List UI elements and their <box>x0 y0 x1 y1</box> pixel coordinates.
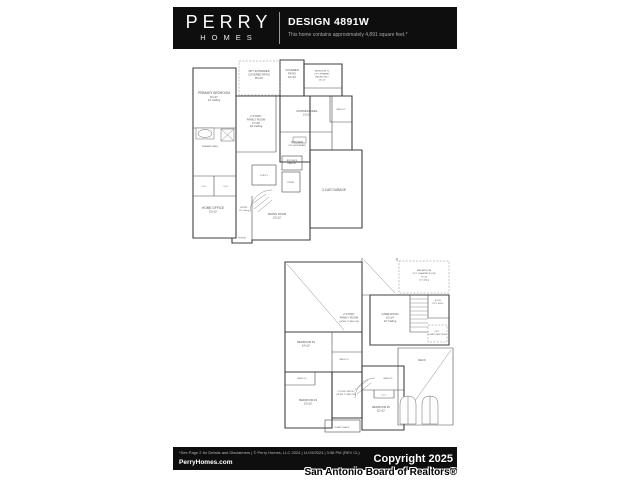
label-game-room-ceiling: 10' Ceiling <box>384 319 397 323</box>
first-floor-fixtures <box>196 128 306 143</box>
label-kitchen: KITCHEN <box>291 140 303 144</box>
label-powder: PWDR. <box>287 182 295 184</box>
label-family-room-1: 2 STORY <box>250 114 262 118</box>
footer-website-link[interactable]: PerryHomes.com <box>179 459 232 466</box>
label-primary-bedroom: PRIMARY BEDROOM <box>198 91 230 95</box>
label-computer-desk-1: OPT. <box>435 331 440 333</box>
label-bedroom2-3: BEDROOM 2 <box>315 77 329 79</box>
label-primary-bedroom-ceiling: 13' Ceiling <box>208 98 221 102</box>
label-entry-ceiling: 13' Ceiling <box>239 210 250 212</box>
label-morning-area: MORNING AREA <box>297 109 318 113</box>
label-butlers-1: BUTLER'S <box>287 160 298 162</box>
label-family-room-dims: 17'x19' <box>252 121 261 125</box>
copyright-text: Copyright 2025 <box>374 453 453 465</box>
label-opt-patio-1: OPT. EXTENDED <box>248 69 269 73</box>
second-floor-plan: 2 STORY FAMILY ROOM (OPEN TO BELOW) MEDI… <box>277 253 457 453</box>
label-storage: STOR. <box>435 300 442 302</box>
label-bath2: BATH #2 <box>337 108 346 111</box>
label-morning-area-dims: 13'x11' <box>303 112 312 116</box>
label-bedroom2-2: OPT. PRIMARY <box>314 73 330 76</box>
logo-perry: PERRY <box>183 12 275 32</box>
label-utility: UTILITY <box>260 175 269 177</box>
label-entry-open-1: 2 STORY ENTRY <box>337 391 355 393</box>
label-bedroom2-dims: 13'x12' <box>319 80 326 82</box>
label-entry: ENTRY <box>240 207 248 209</box>
label-closet1: CLO. <box>201 186 206 188</box>
label-bath4: BATH #4 <box>298 377 307 380</box>
first-floor-plan: PRIMARY BEDROOM 16'x17' 13' Ceiling OPT.… <box>185 55 367 251</box>
first-floor-labels: PRIMARY BEDROOM 16'x17' 13' Ceiling OPT.… <box>198 68 346 240</box>
label-dining-dims: 13'x12' <box>273 215 282 219</box>
label-dining: DINING ROOM <box>268 212 287 216</box>
label-family-open-3: (OPEN TO BELOW) <box>339 321 359 323</box>
label-bath3: BATH #3 <box>340 358 349 361</box>
label-game-room: GAME ROOM <box>381 312 399 316</box>
label-clo5: CLO. <box>381 395 386 397</box>
label-porch: PORCH <box>238 238 246 240</box>
board-attribution: San Antonio Board of Realtors® <box>304 467 457 478</box>
label-media-room-ceiling: 10' Ceiling <box>419 280 430 282</box>
label-family-open-1: 2 STORY <box>343 312 355 316</box>
label-game-room-dims: 15'x14' <box>386 315 395 319</box>
label-family-open-2: FAMILY ROOM <box>340 315 359 319</box>
label-media-room-2: OPT. THEATRE ROOM <box>413 272 436 275</box>
label-covered-patio-1: COVERED <box>285 68 298 72</box>
label-home-office-dims: 13'x12' <box>209 210 218 214</box>
label-closet2: CLO. <box>223 186 228 188</box>
label-family-room-2: FAMILY ROOM <box>247 117 266 121</box>
label-home-office: HOME OFFICE <box>202 206 224 210</box>
label-media-room-1: MEDIA ROOM <box>417 269 431 272</box>
label-family-room-ceiling: 19' Ceiling <box>250 124 263 128</box>
label-covered-patio-dims: 10'x10' <box>288 75 297 79</box>
label-storage-opt: OPT. ELEV. <box>432 303 444 305</box>
label-computer-desk-2: COMPUTER DESK <box>427 334 447 336</box>
header-text: DESIGN 4891W This home contains approxim… <box>288 16 408 38</box>
label-bedroom5-dims: 12'x12' <box>377 408 386 412</box>
label-bedroom2-1: BEDROOM #2 <box>315 71 330 73</box>
second-floor-walls <box>285 258 453 432</box>
label-butlers-2: PANTRY <box>288 162 297 165</box>
header-divider <box>279 12 280 44</box>
label-opt-patio-2: COVERED PATIO <box>248 72 270 76</box>
label-deck: DECK <box>418 358 426 362</box>
design-subtitle: This home contains approximately 4,891 s… <box>288 32 408 38</box>
label-media-room-dims: 17'x14' <box>421 276 428 278</box>
label-garage: 3-CAR GARAGE <box>322 188 346 192</box>
label-entry-open-2: (OPEN TO BELOW) <box>336 394 356 396</box>
label-primary-bedroom-dims: 16'x17' <box>210 95 219 99</box>
header-bar: PERRY HOMES DESIGN 4891W This home conta… <box>173 7 457 49</box>
label-bedroom3-dims: 14'x12' <box>302 343 311 347</box>
label-opt-patio-dims: 20'x10' <box>255 76 264 80</box>
label-bath5: BATH #5 <box>384 377 393 380</box>
label-bedroom5: BEDROOM #5 <box>372 405 390 409</box>
footer-disclaimer: *See Page 2 for Details and Disclaimers … <box>179 450 360 455</box>
design-title: DESIGN 4891W <box>288 16 408 28</box>
label-covered-patio-2: PATIO <box>288 71 296 75</box>
perry-homes-logo: PERRY HOMES <box>183 12 275 42</box>
listing-image-page: PERRY HOMES DESIGN 4891W This home conta… <box>0 0 640 480</box>
label-kitchen-opt: OPT. ALTERNATE <box>288 144 306 147</box>
logo-homes: HOMES <box>183 33 275 42</box>
label-plant-shelf: PLANT SHELF <box>335 426 350 429</box>
label-bedroom4: BEDROOM #4 <box>299 398 317 402</box>
label-bedroom3: BEDROOM #3 <box>297 340 315 344</box>
label-primary-bath: PRIMARY BATH <box>202 145 219 148</box>
label-bedroom4-dims: 13'x12' <box>304 401 313 405</box>
